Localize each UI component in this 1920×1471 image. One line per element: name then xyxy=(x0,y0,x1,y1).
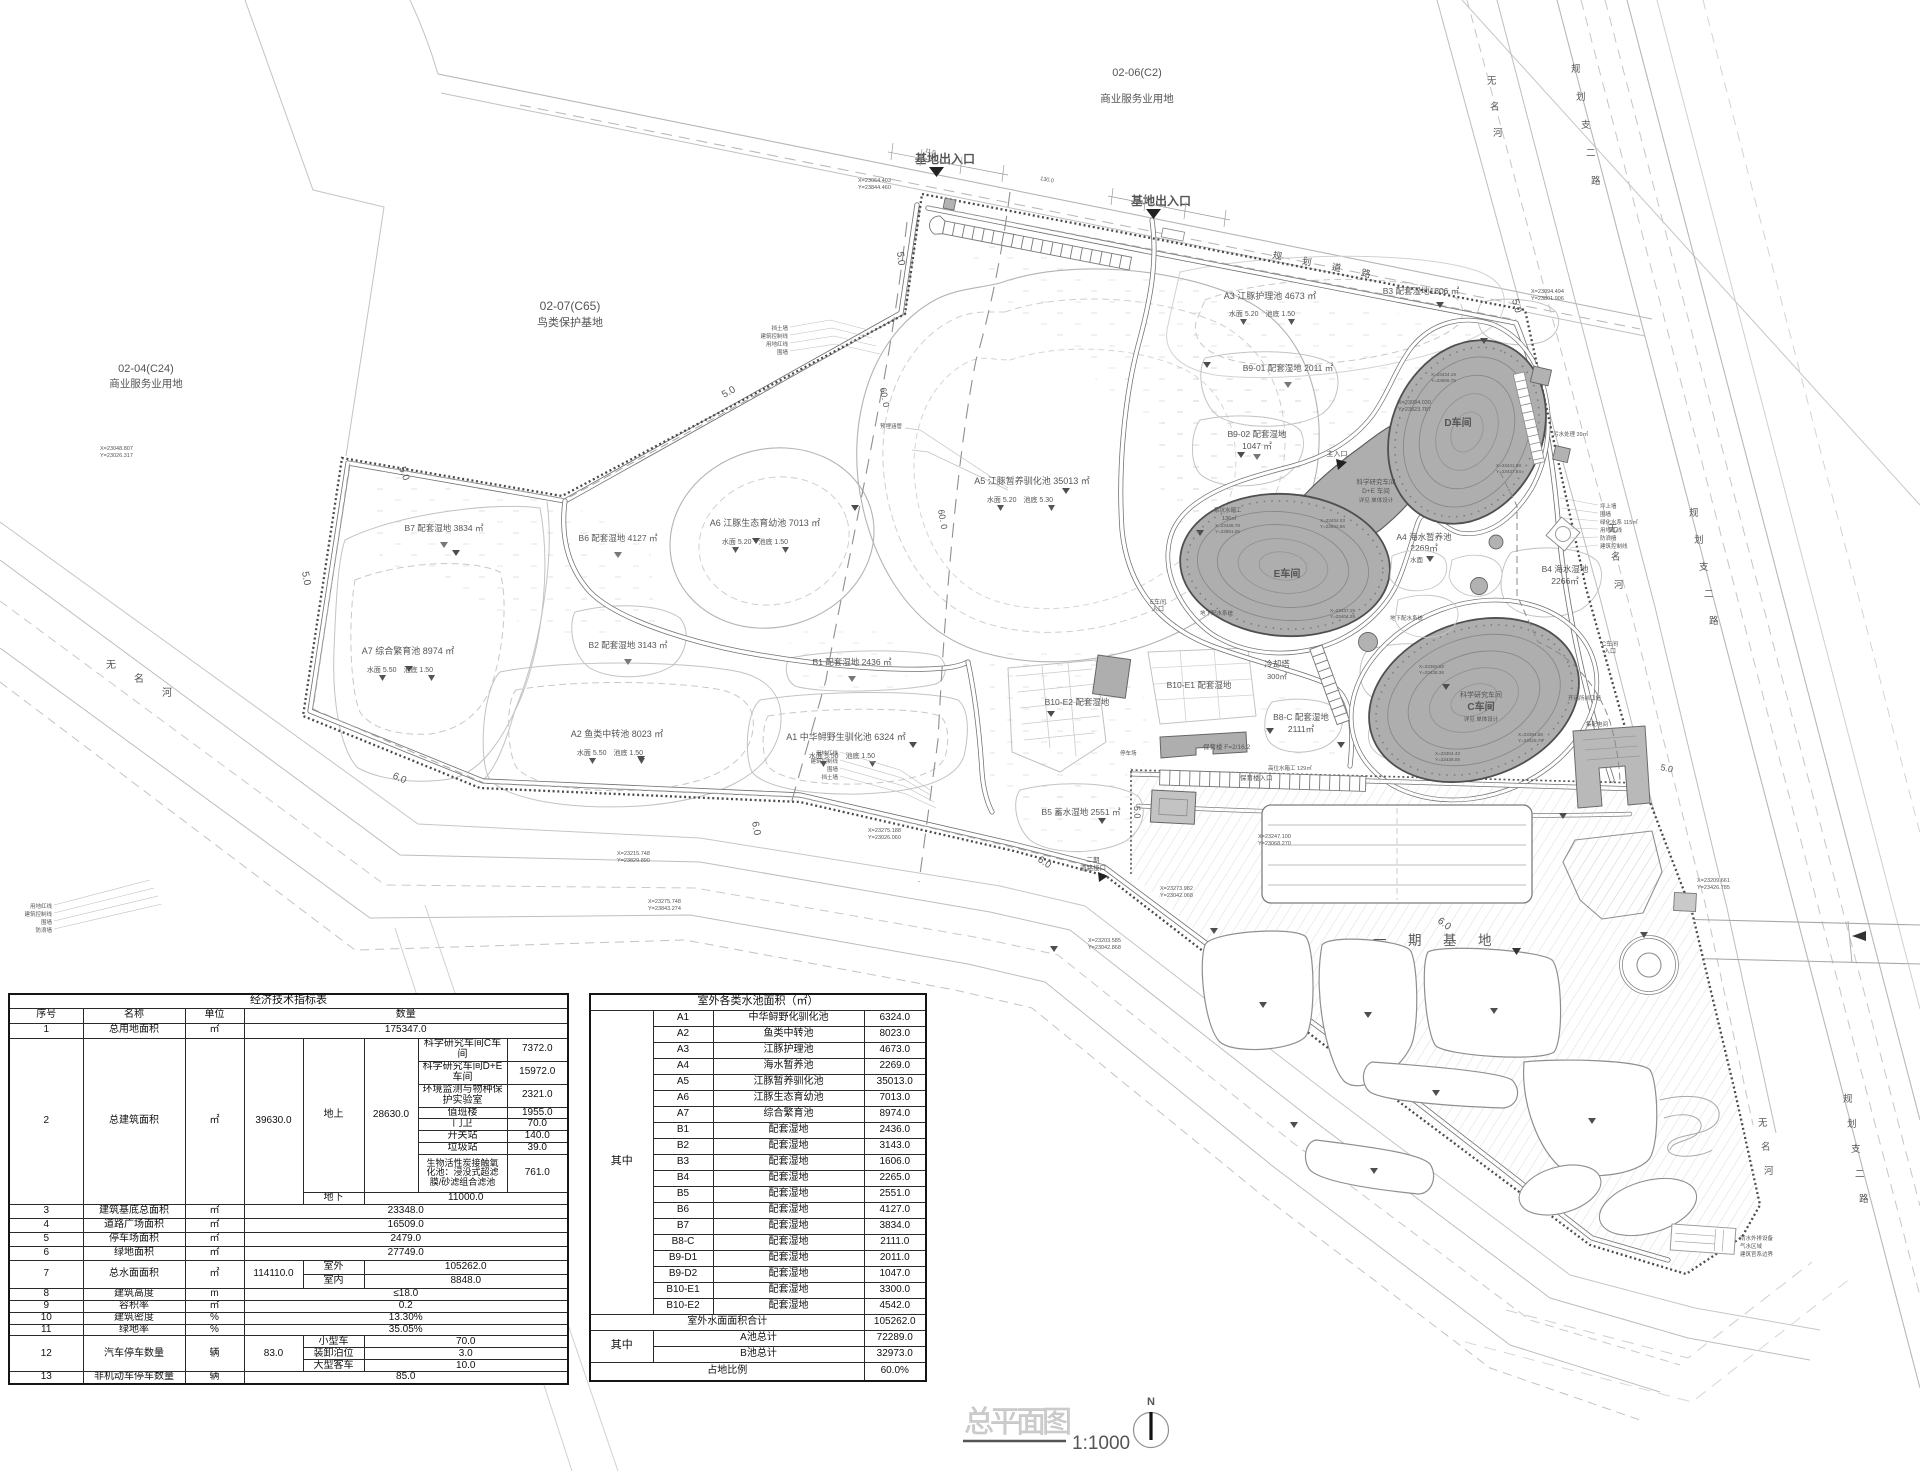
svg-text:建筑控制线: 建筑控制线 xyxy=(760,332,788,340)
svg-text:名: 名 xyxy=(1611,551,1621,563)
svg-text:挡土墙: 挡土墙 xyxy=(771,324,788,332)
svg-text:X=23275.188: X=23275.188 xyxy=(868,828,901,834)
svg-text:02-04(C24): 02-04(C24) xyxy=(118,363,174,375)
svg-text:地下配水系统: 地下配水系统 xyxy=(1200,609,1234,617)
svg-text:保育楼入口: 保育楼入口 xyxy=(1240,773,1273,782)
svg-text:防浪墙: 防浪墙 xyxy=(1600,534,1617,542)
svg-text:B1 配套湿地 2436 ㎡: B1 配套湿地 2436 ㎡ xyxy=(813,657,892,667)
svg-text:无: 无 xyxy=(1487,76,1497,87)
svg-text:停车场: 停车场 xyxy=(1120,749,1137,757)
svg-text:A3 江豚护理池 4673 ㎡: A3 江豚护理池 4673 ㎡ xyxy=(1224,290,1317,301)
svg-text:2266㎡: 2266㎡ xyxy=(1551,576,1579,586)
svg-text:X=23434.19: X=23434.19 xyxy=(1431,372,1456,377)
svg-text:X=23094.494: X=23094.494 xyxy=(1531,289,1564,295)
svg-text:02-07(C65): 02-07(C65) xyxy=(540,299,601,313)
svg-text:名: 名 xyxy=(1490,101,1500,113)
svg-text:X=23434.03: X=23434.03 xyxy=(1320,518,1345,523)
svg-text:5.0: 5.0 xyxy=(894,251,907,267)
svg-text:冷却塔: 冷却塔 xyxy=(1264,659,1290,669)
svg-text:预埋涵管: 预埋涵管 xyxy=(880,422,903,430)
svg-text:Y=23829.890: Y=23829.890 xyxy=(617,858,650,864)
svg-text:科学研究车间: 科学研究车间 xyxy=(1357,477,1396,486)
svg-text:科学研究车间: 科学研究车间 xyxy=(1460,690,1502,699)
svg-text:一期基地: 一期基地 xyxy=(1373,932,1513,948)
svg-text:A2 鱼类中转池 8023 ㎡: A2 鱼类中转池 8023 ㎡ xyxy=(571,728,664,739)
svg-text:5.0: 5.0 xyxy=(299,571,312,587)
svg-text:路: 路 xyxy=(1709,615,1719,627)
svg-text:A5 江豚暂养驯化池 35013 ㎡: A5 江豚暂养驯化池 35013 ㎡ xyxy=(974,475,1090,486)
svg-text:X=23437.19: X=23437.19 xyxy=(1330,608,1355,613)
svg-text:建筑控制线: 建筑控制线 xyxy=(1600,542,1628,550)
svg-text:总平面图: 总平面图 xyxy=(964,1406,1070,1439)
svg-text:挡土墙: 挡土墙 xyxy=(821,773,838,781)
svg-text:围墙: 围墙 xyxy=(1600,510,1612,518)
svg-text:Y=23806.75: Y=23806.75 xyxy=(1431,378,1456,383)
svg-text:围墙: 围墙 xyxy=(827,765,839,773)
svg-text:二: 二 xyxy=(1704,589,1714,600)
svg-text:X=23203.585: X=23203.585 xyxy=(1088,938,1121,944)
svg-text:划: 划 xyxy=(1847,1118,1857,1130)
svg-text:6.0: 6.0 xyxy=(391,771,409,787)
svg-text:划: 划 xyxy=(1694,534,1704,546)
svg-text:Y=23438.36: Y=23438.36 xyxy=(1419,670,1444,675)
svg-text:水面 5.20 池底 1.50: 水面 5.20 池底 1.50 xyxy=(1229,309,1295,318)
svg-text:二: 二 xyxy=(1855,1169,1865,1180)
svg-text:Y=23801.906: Y=23801.906 xyxy=(1531,296,1564,302)
svg-text:商业服务业用地: 商业服务业用地 xyxy=(109,377,183,390)
svg-text:X=23094.030: X=23094.030 xyxy=(1398,400,1431,406)
svg-text:Y=23861.05: Y=23861.05 xyxy=(1215,529,1240,534)
svg-text:用地红线: 用地红线 xyxy=(30,902,53,910)
svg-text:围墙: 围墙 xyxy=(41,918,53,926)
svg-text:X=23048.807: X=23048.807 xyxy=(100,446,133,452)
svg-text:路: 路 xyxy=(1591,175,1601,187)
svg-text:X=23441.58: X=23441.58 xyxy=(1496,463,1521,468)
svg-text:X=23247.100: X=23247.100 xyxy=(1258,834,1291,840)
svg-text:河: 河 xyxy=(1764,1165,1774,1177)
svg-text:入口: 入口 xyxy=(1152,606,1164,613)
svg-text:基地出入口: 基地出入口 xyxy=(1130,193,1191,208)
svg-text:入口: 入口 xyxy=(1604,648,1616,655)
svg-text:围墙: 围墙 xyxy=(777,348,789,356)
svg-text:无: 无 xyxy=(106,660,116,671)
svg-text:D+E 车间: D+E 车间 xyxy=(1362,486,1390,495)
svg-text:划: 划 xyxy=(1576,91,1586,103)
svg-text:X=23383.58: X=23383.58 xyxy=(1419,664,1444,669)
svg-text:X=23215.748: X=23215.748 xyxy=(617,851,650,857)
svg-text:02-06(C2): 02-06(C2) xyxy=(1112,67,1162,79)
svg-text:Y=23438.09: Y=23438.09 xyxy=(1435,757,1460,762)
svg-text:B10-E1 配套湿地: B10-E1 配套湿地 xyxy=(1167,680,1232,690)
svg-text:二期: 二期 xyxy=(1087,856,1101,864)
svg-text:Y=23068.270: Y=23068.270 xyxy=(1258,841,1291,847)
svg-text:B7 配套湿地 3834 ㎡: B7 配套湿地 3834 ㎡ xyxy=(405,523,484,533)
svg-text:X=23275.748: X=23275.748 xyxy=(648,899,681,905)
svg-text:Y=23437.84: Y=23437.84 xyxy=(1496,469,1521,474)
svg-text:Y=23842.86: Y=23842.86 xyxy=(1320,524,1345,529)
svg-text:Y=23844.460: Y=23844.460 xyxy=(858,185,891,191)
svg-text:开闭所挡口墙: 开闭所挡口墙 xyxy=(1568,694,1602,702)
svg-text:二: 二 xyxy=(1586,148,1596,159)
svg-text:136㎡: 136㎡ xyxy=(1222,514,1237,522)
svg-text:B3 配套湿地1606 ㎡: B3 配套湿地1606 ㎡ xyxy=(1383,286,1460,296)
svg-text:Y=23425.75: Y=23425.75 xyxy=(1518,738,1543,743)
svg-text:道路接口: 道路接口 xyxy=(1080,863,1106,872)
svg-text:水面: 水面 xyxy=(1410,555,1424,564)
svg-text:Y=23404.29: Y=23404.29 xyxy=(1330,614,1355,619)
svg-text:水面 5.50 池底 1.50: 水面 5.50 池底 1.50 xyxy=(367,665,433,674)
svg-text:1:1000: 1:1000 xyxy=(1072,1433,1130,1454)
svg-text:5.0: 5.0 xyxy=(720,384,738,401)
svg-text:水面 5.50 池底 1.50: 水面 5.50 池底 1.50 xyxy=(577,748,643,757)
svg-text:商业服务业用地: 商业服务业用地 xyxy=(1100,92,1174,105)
svg-text:E车间: E车间 xyxy=(1150,598,1166,606)
svg-text:B9-01 配套湿地 2011 ㎡: B9-01 配套湿地 2011 ㎡ xyxy=(1243,363,1334,373)
svg-text:C车间: C车间 xyxy=(1602,640,1618,648)
svg-text:集配电间: 集配电间 xyxy=(1586,720,1608,728)
svg-text:A4 海水暂养池: A4 海水暂养池 xyxy=(1396,532,1452,542)
svg-text:高位水箱工 129㎡: 高位水箱工 129㎡ xyxy=(1268,764,1312,772)
svg-text:B8-C 配套湿地: B8-C 配套湿地 xyxy=(1273,712,1329,722)
svg-text:绿化水系 115㎡: 绿化水系 115㎡ xyxy=(1600,518,1638,526)
svg-text:路: 路 xyxy=(1859,1193,1869,1205)
svg-text:支: 支 xyxy=(1699,561,1709,573)
svg-text:300㎡: 300㎡ xyxy=(1267,672,1288,681)
svg-text:规: 规 xyxy=(1571,64,1581,75)
svg-text:河: 河 xyxy=(1614,579,1624,591)
svg-text:X=23394.58: X=23394.58 xyxy=(1518,732,1543,737)
svg-text:河: 河 xyxy=(162,687,172,699)
svg-text:名: 名 xyxy=(1761,1141,1771,1153)
svg-text:主入口: 主入口 xyxy=(1327,449,1348,458)
svg-text:建筑官系边界: 建筑官系边界 xyxy=(1740,1250,1774,1258)
svg-text:A6 江豚生态育幼池 7013 ㎡: A6 江豚生态育幼池 7013 ㎡ xyxy=(710,517,821,528)
svg-text:保育楼 F=2/16.2: 保育楼 F=2/16.2 xyxy=(1203,742,1251,751)
svg-text:坪上墙: 坪上墙 xyxy=(1600,502,1617,510)
svg-text:X=23064.403: X=23064.403 xyxy=(858,178,891,184)
svg-text:D车间: D车间 xyxy=(1444,416,1471,429)
svg-text:用地红线: 用地红线 xyxy=(816,749,839,757)
svg-text:支: 支 xyxy=(1581,119,1591,131)
svg-text:名: 名 xyxy=(134,672,144,685)
svg-text:B10-E2 配套湿地: B10-E2 配套湿地 xyxy=(1045,697,1110,707)
svg-text:详见 单体设计: 详见 单体设计 xyxy=(1464,715,1499,723)
svg-text:6.0: 6.0 xyxy=(749,821,762,837)
svg-text:防浪墙: 防浪墙 xyxy=(35,926,52,934)
svg-text:2111㎡: 2111㎡ xyxy=(1288,724,1315,734)
svg-text:鸟类保护基地: 鸟类保护基地 xyxy=(537,315,603,329)
svg-text:Y=23026.317: Y=23026.317 xyxy=(100,453,133,459)
svg-text:130.0: 130.0 xyxy=(1040,176,1055,185)
svg-text:规: 规 xyxy=(1843,1094,1853,1105)
svg-text:Y=23026.060: Y=23026.060 xyxy=(868,835,901,841)
svg-text:用地红线: 用地红线 xyxy=(1600,526,1623,534)
svg-text:Y=23042.068: Y=23042.068 xyxy=(1160,893,1193,899)
svg-text:Y=23426.785: Y=23426.785 xyxy=(1697,885,1730,891)
svg-text:5.0: 5.0 xyxy=(1132,806,1142,819)
svg-text:污水处理 39㎡: 污水处理 39㎡ xyxy=(1553,430,1589,438)
svg-text:建筑控制线: 建筑控制线 xyxy=(810,757,838,765)
svg-text:A1 中华鲟野生驯化池 6324 ㎡: A1 中华鲟野生驯化池 6324 ㎡ xyxy=(786,731,906,742)
svg-text:X=23436.78: X=23436.78 xyxy=(1215,523,1240,528)
svg-text:支: 支 xyxy=(1851,1143,1861,1155)
svg-text:A7 综合繁育池 8974 ㎡: A7 综合繁育池 8974 ㎡ xyxy=(362,645,455,656)
svg-text:2269㎡: 2269㎡ xyxy=(1410,543,1438,553)
svg-text:X=23209.661: X=23209.661 xyxy=(1697,878,1730,884)
svg-text:雨水外排设备: 雨水外排设备 xyxy=(1740,1234,1774,1242)
svg-text:5.0: 5.0 xyxy=(1660,762,1674,774)
svg-text:N: N xyxy=(1147,1396,1155,1408)
svg-text:无: 无 xyxy=(1758,1118,1768,1129)
svg-text:C车间: C车间 xyxy=(1467,700,1494,713)
svg-text:Y=23042.868: Y=23042.868 xyxy=(1088,945,1121,951)
svg-text:建筑控制线: 建筑控制线 xyxy=(24,910,52,918)
svg-text:详见 单体设计: 详见 单体设计 xyxy=(1359,496,1394,504)
svg-text:B2 配套湿地 3143 ㎡: B2 配套湿地 3143 ㎡ xyxy=(589,640,668,650)
svg-text:河: 河 xyxy=(1493,127,1503,139)
svg-text:B5 蓄水湿地 2551 ㎡: B5 蓄水湿地 2551 ㎡ xyxy=(1042,807,1121,817)
svg-text:B9-02 配套湿地: B9-02 配套湿地 xyxy=(1227,429,1287,439)
svg-text:B6 配套湿地 4127 ㎡: B6 配套湿地 4127 ㎡ xyxy=(579,533,658,543)
svg-text:Y=23843.274: Y=23843.274 xyxy=(648,906,681,912)
svg-text:1047 ㎡: 1047 ㎡ xyxy=(1242,441,1272,451)
svg-text:用地红线: 用地红线 xyxy=(766,340,789,348)
svg-text:规: 规 xyxy=(1689,508,1699,519)
svg-text:X=23304.43: X=23304.43 xyxy=(1435,751,1460,756)
svg-text:E车间: E车间 xyxy=(1274,567,1301,580)
svg-text:B4 海水湿地: B4 海水湿地 xyxy=(1542,564,1589,574)
svg-text:X=23273.982: X=23273.982 xyxy=(1160,886,1193,892)
svg-text:气水区域: 气水区域 xyxy=(1740,1242,1763,1250)
svg-text:水面 5.20 池底 5.30: 水面 5.20 池底 5.30 xyxy=(987,495,1053,504)
